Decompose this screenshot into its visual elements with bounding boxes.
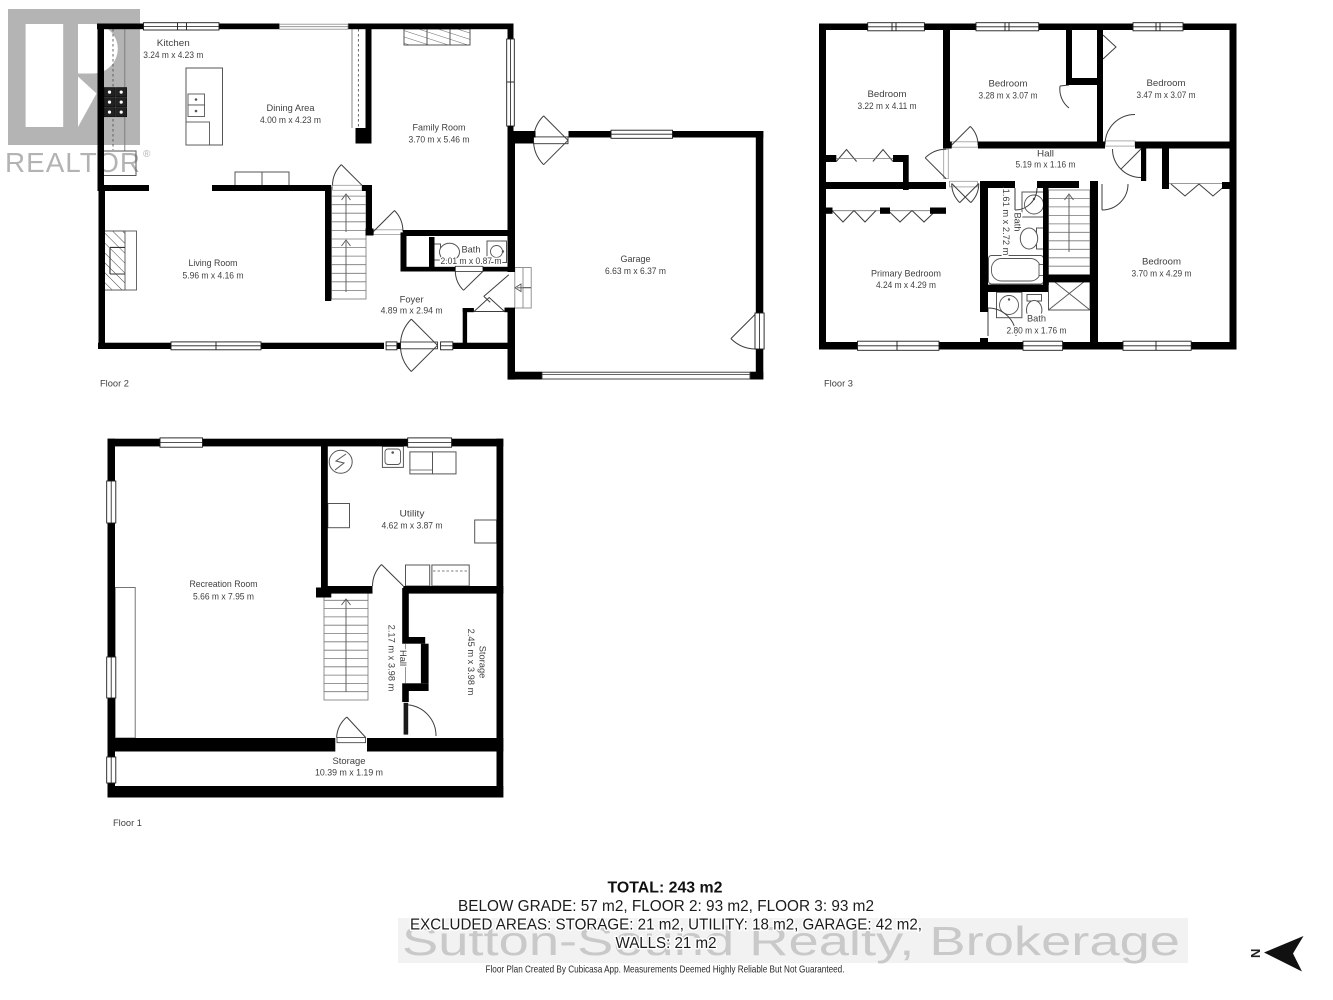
- svg-text:TOTAL: 243 m2: TOTAL: 243 m2: [608, 880, 723, 897]
- svg-text:2.17 m x 3.98 m: 2.17 m x 3.98 m: [386, 625, 396, 692]
- svg-text:Floor 2: Floor 2: [100, 378, 129, 388]
- svg-text:Bath: Bath: [462, 245, 481, 255]
- svg-text:Floor 1: Floor 1: [113, 818, 142, 828]
- svg-text:BELOW GRADE: 57 m2, FLOOR 2: 9: BELOW GRADE: 57 m2, FLOOR 2: 93 m2, FLOO…: [458, 898, 874, 915]
- svg-text:Utility: Utility: [400, 509, 425, 519]
- svg-text:Bedroom: Bedroom: [989, 79, 1028, 89]
- svg-text:3.70 m x 4.29 m: 3.70 m x 4.29 m: [1132, 269, 1192, 279]
- svg-text:3.24 m x 4.23 m: 3.24 m x 4.23 m: [143, 50, 203, 60]
- svg-text:6.63 m x 6.37 m: 6.63 m x 6.37 m: [605, 266, 666, 276]
- svg-text:Recreation Room: Recreation Room: [190, 579, 258, 589]
- svg-text:Storage: Storage: [478, 646, 488, 679]
- svg-text:2.01 m x 0.87 m: 2.01 m x 0.87 m: [441, 256, 502, 266]
- svg-text:5.19 m x 1.16 m: 5.19 m x 1.16 m: [1016, 160, 1076, 170]
- svg-text:5.96 m x 4.16 m: 5.96 m x 4.16 m: [183, 271, 244, 281]
- svg-text:Floor 3: Floor 3: [824, 378, 853, 388]
- svg-text:Hall: Hall: [398, 650, 408, 666]
- svg-text:WALLS: 21 m2: WALLS: 21 m2: [616, 935, 717, 952]
- svg-text:2.80 m x 1.76 m: 2.80 m x 1.76 m: [1007, 326, 1067, 336]
- svg-text:Bath: Bath: [1027, 314, 1046, 324]
- svg-text:3.70 m x 5.46 m: 3.70 m x 5.46 m: [409, 135, 470, 145]
- svg-text:Kitchen: Kitchen: [157, 38, 190, 48]
- svg-text:3.22 m x 4.11 m: 3.22 m x 4.11 m: [858, 101, 917, 111]
- svg-text:Storage: Storage: [333, 756, 366, 766]
- svg-text:Bath: Bath: [1013, 212, 1023, 231]
- svg-text:Bedroom: Bedroom: [1142, 257, 1181, 267]
- svg-text:EXCLUDED AREAS: STORAGE: 21 m2: EXCLUDED AREAS: STORAGE: 21 m2, UTILITY:…: [410, 917, 922, 934]
- svg-text:Hall: Hall: [1037, 149, 1054, 159]
- svg-text:5.66 m x 7.95 m: 5.66 m x 7.95 m: [193, 592, 254, 602]
- svg-text:Bedroom: Bedroom: [868, 89, 907, 99]
- svg-text:3.47 m x 3.07 m: 3.47 m x 3.07 m: [1137, 90, 1196, 100]
- svg-text:Primary Bedroom: Primary Bedroom: [871, 269, 941, 279]
- svg-text:3.28 m x 3.07 m: 3.28 m x 3.07 m: [979, 91, 1038, 101]
- svg-text:4.89 m x 2.94 m: 4.89 m x 2.94 m: [381, 306, 443, 316]
- svg-text:Bedroom: Bedroom: [1147, 78, 1186, 88]
- svg-text:4.62 m x 3.87 m: 4.62 m x 3.87 m: [382, 521, 443, 531]
- svg-text:4.00 m x 4.23 m: 4.00 m x 4.23 m: [260, 115, 321, 125]
- svg-text:Living Room: Living Room: [189, 258, 238, 268]
- svg-text:N: N: [1248, 949, 1263, 958]
- svg-text:Family Room: Family Room: [413, 123, 466, 133]
- svg-text:10.39 m x 1.19 m: 10.39 m x 1.19 m: [315, 768, 383, 778]
- svg-text:2.45 m x 3.98 m: 2.45 m x 3.98 m: [466, 629, 476, 696]
- svg-text:Garage: Garage: [621, 254, 651, 264]
- svg-text:REALTOR: REALTOR: [5, 147, 141, 178]
- svg-text:®: ®: [143, 149, 151, 160]
- svg-text:Foyer: Foyer: [400, 295, 424, 305]
- svg-text:4.24 m x 4.29 m: 4.24 m x 4.29 m: [876, 280, 936, 290]
- svg-text:1.61 m x 2.72 m: 1.61 m x 2.72 m: [1001, 189, 1011, 256]
- svg-text:Floor Plan Created By Cubicasa: Floor Plan Created By Cubicasa App. Meas…: [486, 965, 845, 976]
- svg-text:Dining Area: Dining Area: [267, 103, 316, 113]
